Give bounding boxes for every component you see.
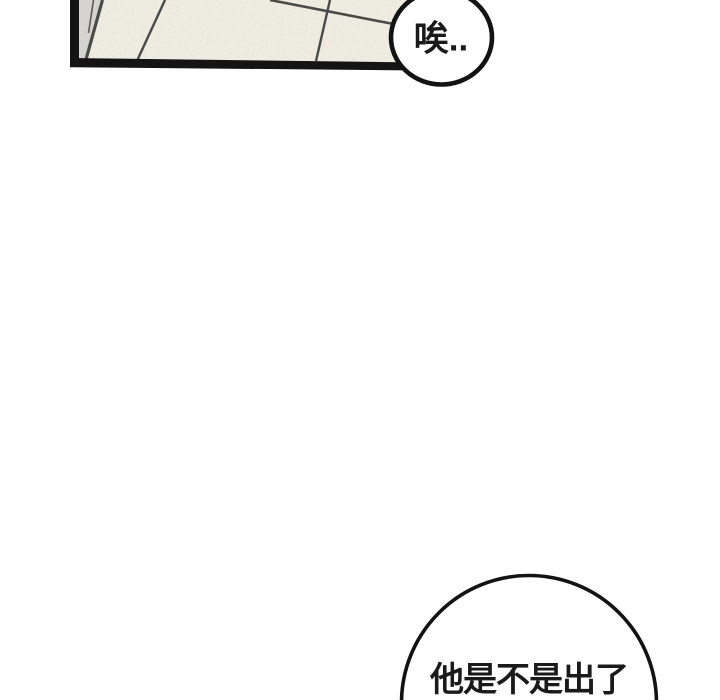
comic-page: 唉.. 他是不是出了 — [0, 0, 720, 700]
bottom-bubble-area: 他是不是出了 — [0, 570, 720, 700]
comic-panel: 唉.. — [0, 0, 720, 110]
speech-bubble-top-text: 唉.. — [414, 20, 468, 59]
speech-bubble-bottom-text: 他是不是出了 — [429, 661, 628, 699]
panel-border-left — [70, 0, 79, 67]
